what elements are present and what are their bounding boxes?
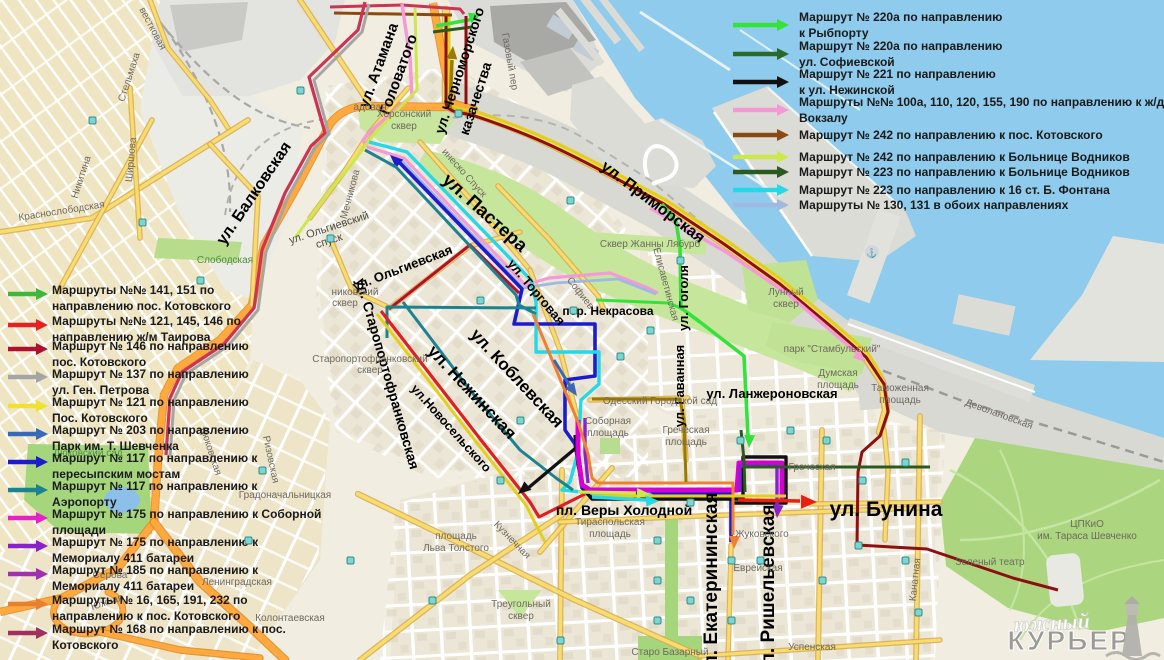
- svg-text:Льва Толстого: Льва Толстого: [423, 543, 489, 554]
- svg-text:Зеленый театр: Зеленый театр: [955, 557, 1025, 568]
- svg-text:Маршрут № 185 по направлению к: Маршрут № 185 по направлению к: [52, 563, 259, 577]
- svg-text:Маршрут № 223 по направлению к: Маршрут № 223 по направлению к 16 ст. Б.…: [799, 183, 1110, 197]
- svg-text:площадь: площадь: [665, 437, 707, 448]
- svg-text:Греческая: Греческая: [789, 462, 836, 473]
- svg-text:Думская: Думская: [818, 368, 857, 379]
- svg-text:сквер: сквер: [332, 298, 358, 309]
- svg-text:ул. Ришельевская: ул. Ришельевская: [758, 505, 779, 660]
- svg-text:площадь: площадь: [879, 395, 921, 406]
- svg-text:Маршруты №№ 100а, 110, 120, 15: Маршруты №№ 100а, 110, 120, 155, 190 по …: [799, 95, 1164, 109]
- svg-text:Старо Базарный: Старо Базарный: [631, 647, 708, 658]
- svg-text:сквер: сквер: [391, 121, 417, 132]
- svg-text:Маршрут № 223 по направлению к: Маршрут № 223 по направлению к Больнице …: [799, 165, 1130, 179]
- svg-text:Успенская: Успенская: [788, 642, 836, 653]
- svg-text:Таможенная: Таможенная: [871, 383, 929, 394]
- svg-text:Маршрут № 221 по направлению: Маршрут № 221 по направлению: [799, 67, 996, 81]
- svg-text:Маршрут № 117 по направлению к: Маршрут № 117 по направлению к: [52, 479, 258, 493]
- svg-text:Котовского: Котовского: [52, 638, 119, 652]
- svg-text:Маршруты № 16, 165, 191, 232: Маршруты № 16, 165, 191, 232 по: [52, 593, 248, 607]
- svg-text:Маршрут № 168 по направлению к: Маршрут № 168 по направлению к пос.: [52, 622, 286, 636]
- svg-text:КУРЬЕР: КУРЬЕР: [1007, 625, 1130, 656]
- svg-text:Маршрут № 242 по направлению к: Маршрут № 242 по направлению к Больнице …: [799, 150, 1130, 164]
- svg-text:ул. Гоголя: ул. Гоголя: [676, 265, 691, 331]
- svg-text:ул. Бунина: ул. Бунина: [830, 498, 943, 521]
- svg-text:ул. Екатерининская: ул. Екатерининская: [701, 492, 722, 660]
- svg-text:Греческая: Греческая: [663, 425, 710, 436]
- svg-text:площадь: площадь: [589, 529, 631, 540]
- svg-text:ЦПКиО: ЦПКиО: [1070, 519, 1104, 530]
- svg-text:Соборная: Соборная: [585, 415, 631, 427]
- svg-text:парк "Стамбульский": парк "Стамбульский": [784, 343, 881, 355]
- svg-text:Маршрут № 175 по направлению к: Маршрут № 175 по направлению к Соборной: [52, 507, 321, 521]
- svg-text:Сквер Жанны Лябурб: Сквер Жанны Лябурб: [600, 238, 701, 250]
- svg-text:направлению к пос. Котовского: направлению к пос. Котовского: [52, 609, 240, 623]
- svg-text:Маршрут № 220а по направлению: Маршрут № 220а по направлению: [799, 10, 1002, 24]
- svg-text:Маршруты №№ 141, 151 по: Маршруты №№ 141, 151 по: [52, 283, 214, 297]
- svg-text:Лунный: Лунный: [768, 287, 804, 298]
- svg-text:Маршрут № 117 по направлению к: Маршрут № 117 по направлению к: [52, 451, 258, 465]
- svg-text:Маршрут № 175 по направлению к: Маршрут № 175 по направлению к: [52, 535, 259, 549]
- svg-text:Маршрут № 220а по направлению: Маршрут № 220а по направлению: [799, 39, 1002, 53]
- svg-text:Маршрут № 121 по направлению: Маршрут № 121 по направлению: [52, 395, 249, 409]
- svg-text:Маршрут № 146 по направлению: Маршрут № 146 по направлению: [52, 339, 249, 353]
- svg-text:направлению пос. Котовского: направлению пос. Котовского: [52, 299, 231, 313]
- svg-text:Одесский Городской сад: Одесский Городской сад: [603, 396, 717, 407]
- svg-text:Старопортофранковский: Старопортофранковский: [312, 353, 427, 365]
- svg-text:сквер: сквер: [508, 611, 534, 622]
- svg-text:площадь: площадь: [435, 531, 477, 542]
- svg-text:к Рыбпорту: к Рыбпорту: [799, 26, 869, 40]
- svg-text:Вокзалу: Вокзалу: [799, 111, 848, 125]
- svg-text:Жуковского: Жуковского: [735, 529, 789, 540]
- svg-text:Мемориалу 411 батареи: Мемориалу 411 батареи: [52, 579, 194, 593]
- svg-text:Маршрут № 242 по направлению: Маршрут № 242 по направлению к пос. Кото…: [799, 128, 1103, 142]
- svg-text:Еврейская: Еврейская: [733, 563, 782, 574]
- svg-text:Маршрут № 203 по направлению: Маршрут № 203 по направлению: [52, 423, 249, 437]
- svg-text:Ленинградская: Ленинградская: [202, 577, 272, 588]
- svg-text:им. Тараса Шевченко: им. Тараса Шевченко: [1037, 531, 1137, 542]
- svg-text:Слободская: Слободская: [197, 254, 253, 266]
- svg-text:Маршруты № 130, 131 в обоих н: Маршруты № 130, 131 в обоих направлениях: [799, 198, 1069, 212]
- svg-text:Тираспольская: Тираспольская: [575, 517, 645, 528]
- svg-text:ул. Гаванная: ул. Гаванная: [672, 345, 687, 428]
- svg-text:Маршрут № 137 по направлению: Маршрут № 137 по направлению: [52, 367, 249, 381]
- svg-text:сквер: сквер: [773, 299, 799, 310]
- svg-text:никовский: никовский: [332, 287, 379, 298]
- svg-text:сквер: сквер: [357, 365, 383, 376]
- svg-text:⚓: ⚓: [866, 247, 877, 258]
- svg-text:Маршруты №№ 121, 145, 146 по: Маршруты №№ 121, 145, 146 по: [52, 314, 241, 328]
- svg-text:площадь: площадь: [817, 380, 859, 391]
- svg-text:площадь: площадь: [587, 428, 629, 439]
- svg-text:Треугольный: Треугольный: [491, 599, 551, 610]
- svg-text:адовая: адовая: [353, 102, 386, 113]
- svg-text:пл. Веры Холодной: пл. Веры Холодной: [556, 502, 692, 518]
